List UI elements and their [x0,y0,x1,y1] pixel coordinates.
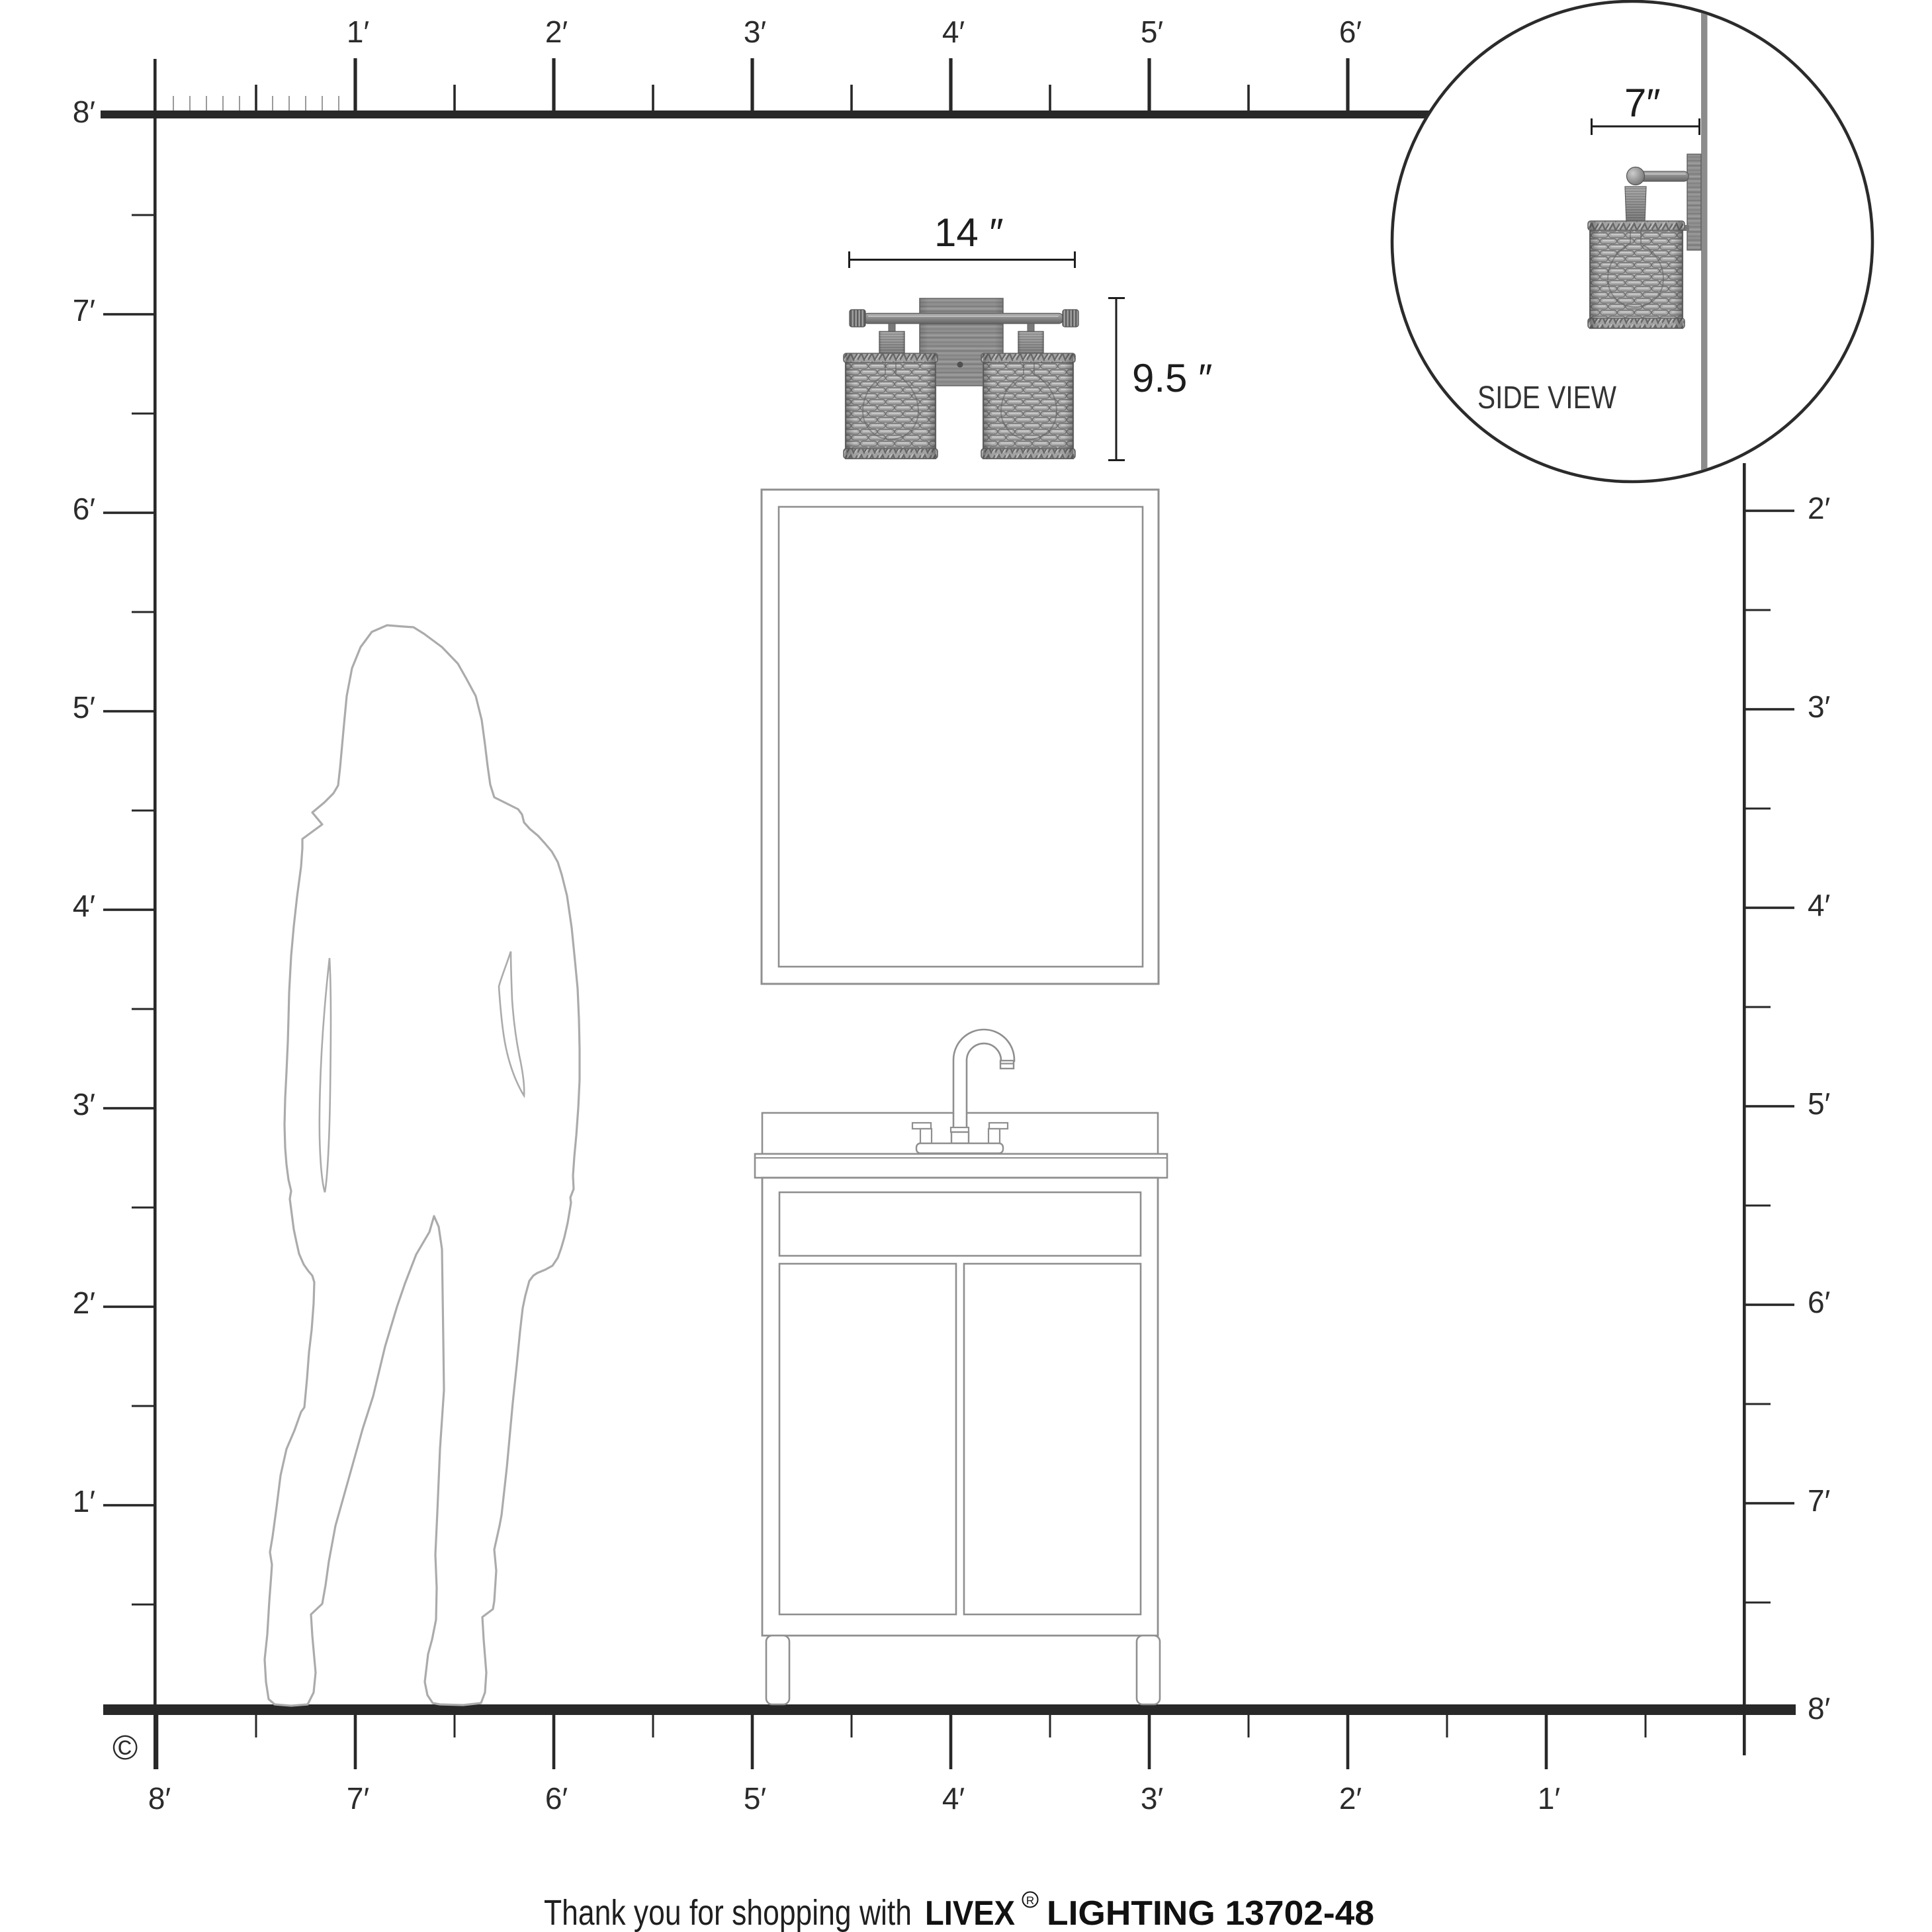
svg-text:14 ″: 14 ″ [934,210,1004,255]
svg-text:4′: 4′ [942,1781,965,1816]
svg-text:6′: 6′ [1339,15,1362,49]
svg-text:4′: 4′ [942,15,965,49]
svg-text:7″: 7″ [1624,81,1661,125]
svg-text:LIVEX: LIVEX [925,1894,1015,1932]
svg-text:5′: 5′ [1808,1086,1830,1121]
svg-text:©: © [112,1729,138,1767]
svg-text:2′: 2′ [73,1286,95,1320]
svg-text:2′: 2′ [1339,1781,1362,1816]
svg-text:2′: 2′ [545,15,568,49]
svg-text:LIGHTING 13702-48: LIGHTING 13702-48 [1047,1894,1374,1932]
svg-text:1′: 1′ [347,15,369,49]
svg-text:8′: 8′ [73,95,95,129]
svg-text:7′: 7′ [73,293,95,328]
svg-text:5′: 5′ [744,1781,766,1816]
svg-text:7′: 7′ [1808,1483,1830,1518]
svg-text:4′: 4′ [1808,888,1830,922]
svg-text:1′: 1′ [1538,1781,1560,1816]
svg-text:1′: 1′ [73,1484,95,1518]
svg-text:9.5 ″: 9.5 ″ [1132,356,1212,400]
svg-text:4′: 4′ [73,889,95,923]
svg-text:6′: 6′ [73,492,95,526]
svg-text:3′: 3′ [73,1087,95,1121]
svg-text:6′: 6′ [545,1781,568,1816]
svg-text:5′: 5′ [73,690,95,724]
svg-text:8′: 8′ [1808,1691,1830,1726]
svg-text:SIDE VIEW: SIDE VIEW [1477,380,1617,416]
svg-text:5′: 5′ [1141,15,1163,49]
svg-text:8′: 8′ [148,1781,171,1816]
svg-text:R: R [1026,1894,1034,1907]
svg-text:Thank you for shopping with: Thank you for shopping with [544,1893,912,1932]
svg-text:3′: 3′ [1808,689,1830,724]
svg-text:7′: 7′ [347,1781,369,1816]
svg-text:2′: 2′ [1808,491,1830,525]
svg-text:6′: 6′ [1808,1285,1830,1319]
svg-text:3′: 3′ [1141,1781,1163,1816]
svg-text:3′: 3′ [744,15,766,49]
